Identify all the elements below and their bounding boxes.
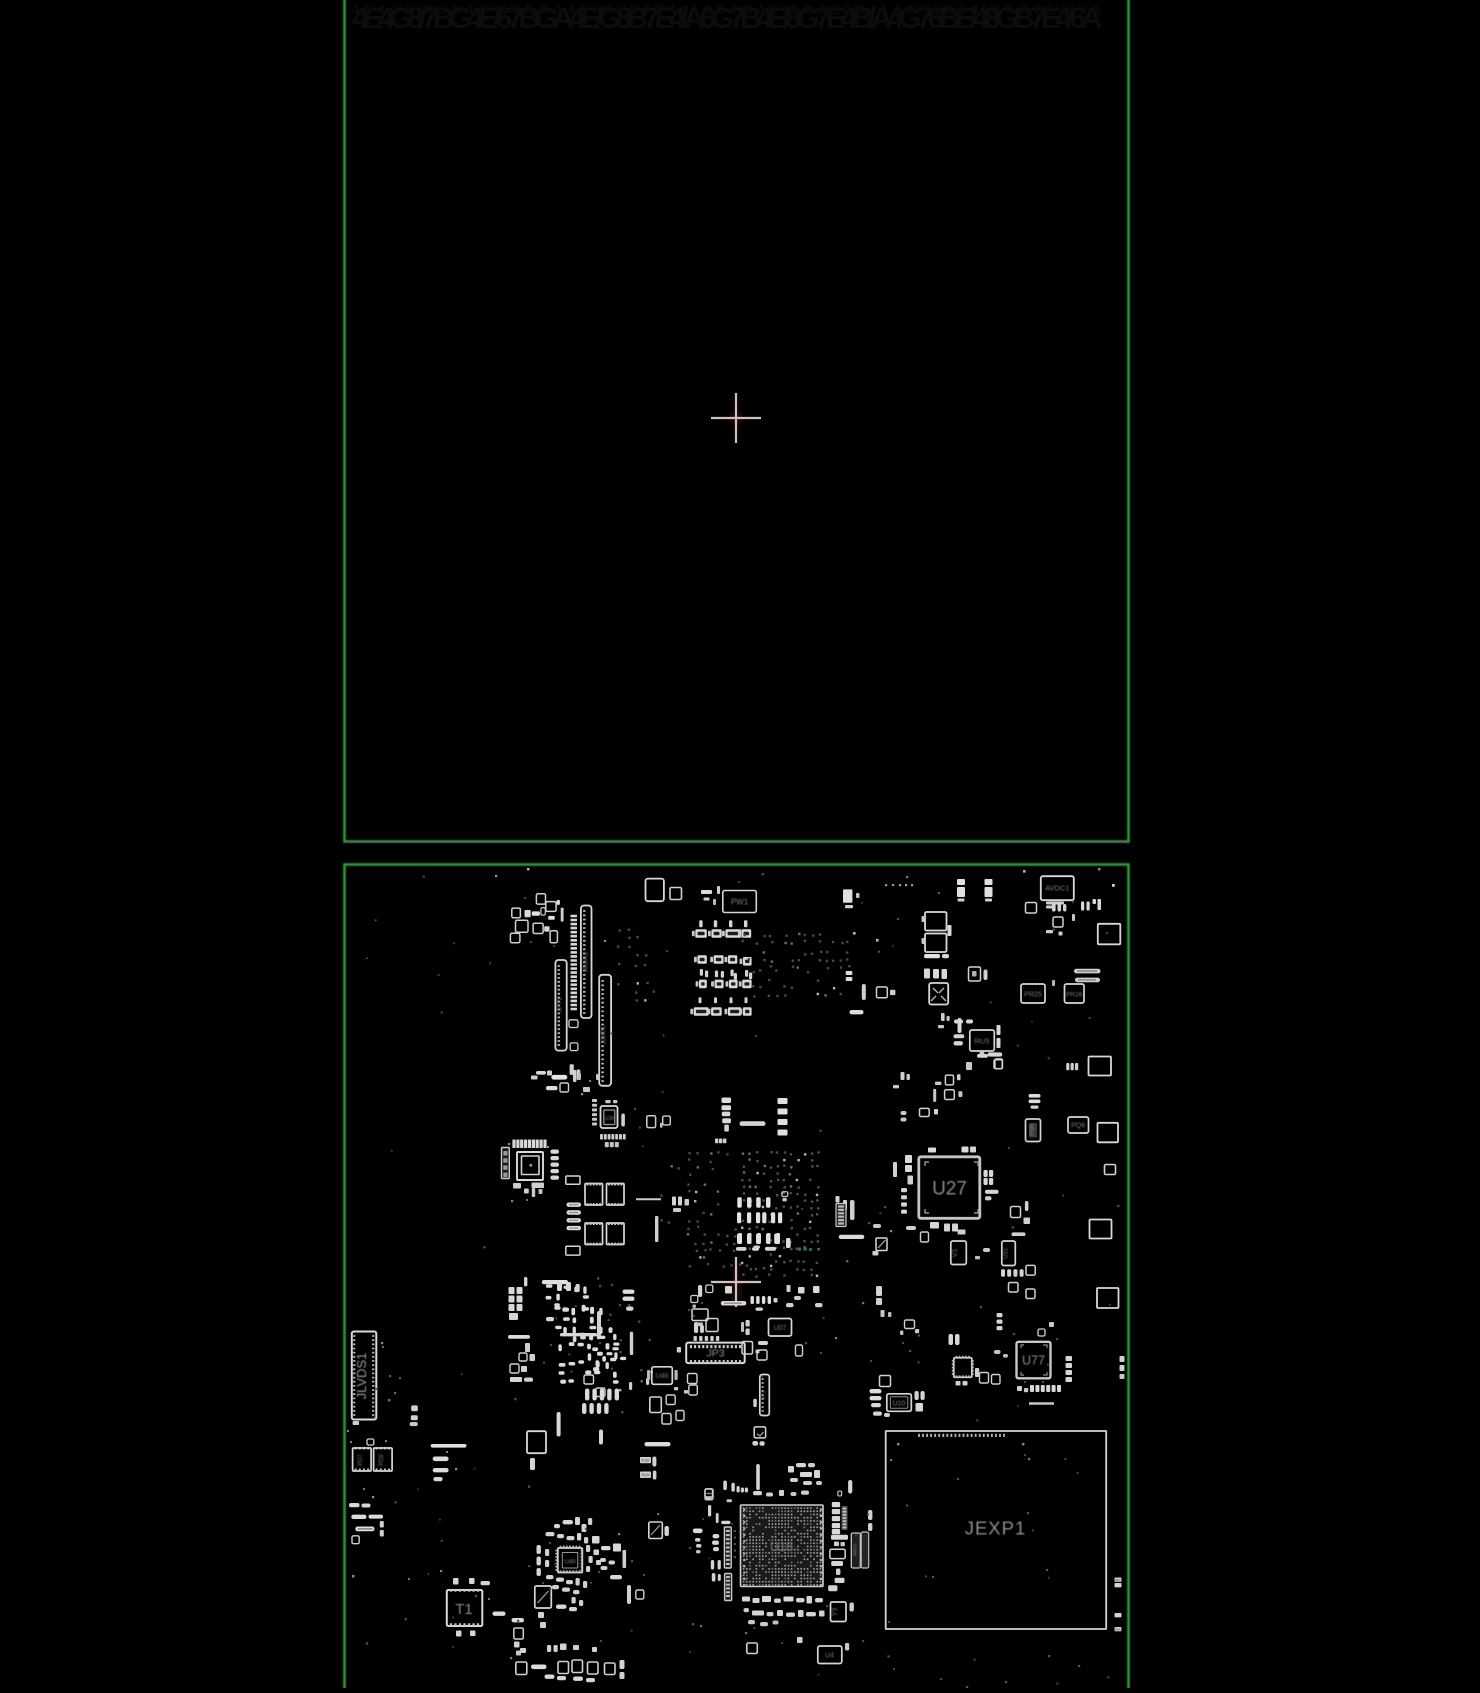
svg-text:JLVDS1: JLVDS1 xyxy=(354,1353,369,1400)
svg-text:U46: U46 xyxy=(656,1373,669,1380)
svg-text:JSAT1: JSAT1 xyxy=(601,1025,608,1044)
svg-text:U77: U77 xyxy=(1022,1354,1045,1368)
svg-text:PQ6: PQ6 xyxy=(1071,1123,1085,1130)
svg-text:AVDC1: AVDC1 xyxy=(1045,884,1069,893)
svg-text:U18: U18 xyxy=(770,1540,793,1554)
svg-text:JDDR2: JDDR2 xyxy=(583,951,590,972)
svg-text:U07: U07 xyxy=(774,1325,787,1332)
svg-text:JMIC1: JMIC1 xyxy=(852,1543,858,1557)
svg-text:T1: T1 xyxy=(455,1601,473,1618)
svg-text:U4: U4 xyxy=(825,1653,834,1660)
svg-text:JF1: JF1 xyxy=(761,1390,767,1399)
svg-text:U49: U49 xyxy=(564,1560,576,1566)
svg-text:JPT1: JPT1 xyxy=(557,997,564,1013)
svg-text:RU5: RU5 xyxy=(974,1037,989,1046)
svg-text:U27: U27 xyxy=(932,1179,967,1200)
svg-text:PD7: PD7 xyxy=(358,1454,364,1466)
svg-text:PQB: PQB xyxy=(1030,1124,1036,1136)
svg-text:U39: U39 xyxy=(604,1116,614,1122)
svg-text:BO: BO xyxy=(1115,1579,1120,1583)
svg-text:V1: V1 xyxy=(952,1249,959,1258)
svg-text:PD8: PD8 xyxy=(379,1454,385,1466)
svg-text:R30: R30 xyxy=(641,1458,650,1463)
svg-text:PW1: PW1 xyxy=(731,898,749,907)
svg-text:Y3: Y3 xyxy=(832,1608,839,1617)
svg-text:U31: U31 xyxy=(1004,1247,1010,1259)
svg-text:JP3: JP3 xyxy=(706,1348,724,1360)
svg-text:JEXP1: JEXP1 xyxy=(965,1518,1027,1539)
svg-text:PR25: PR25 xyxy=(1024,992,1042,999)
svg-text:R29: R29 xyxy=(641,1473,650,1478)
svg-text:RO: RO xyxy=(1115,1628,1121,1632)
svg-text:U10: U10 xyxy=(893,1401,906,1408)
svg-text:PR26: PR26 xyxy=(1066,992,1083,999)
